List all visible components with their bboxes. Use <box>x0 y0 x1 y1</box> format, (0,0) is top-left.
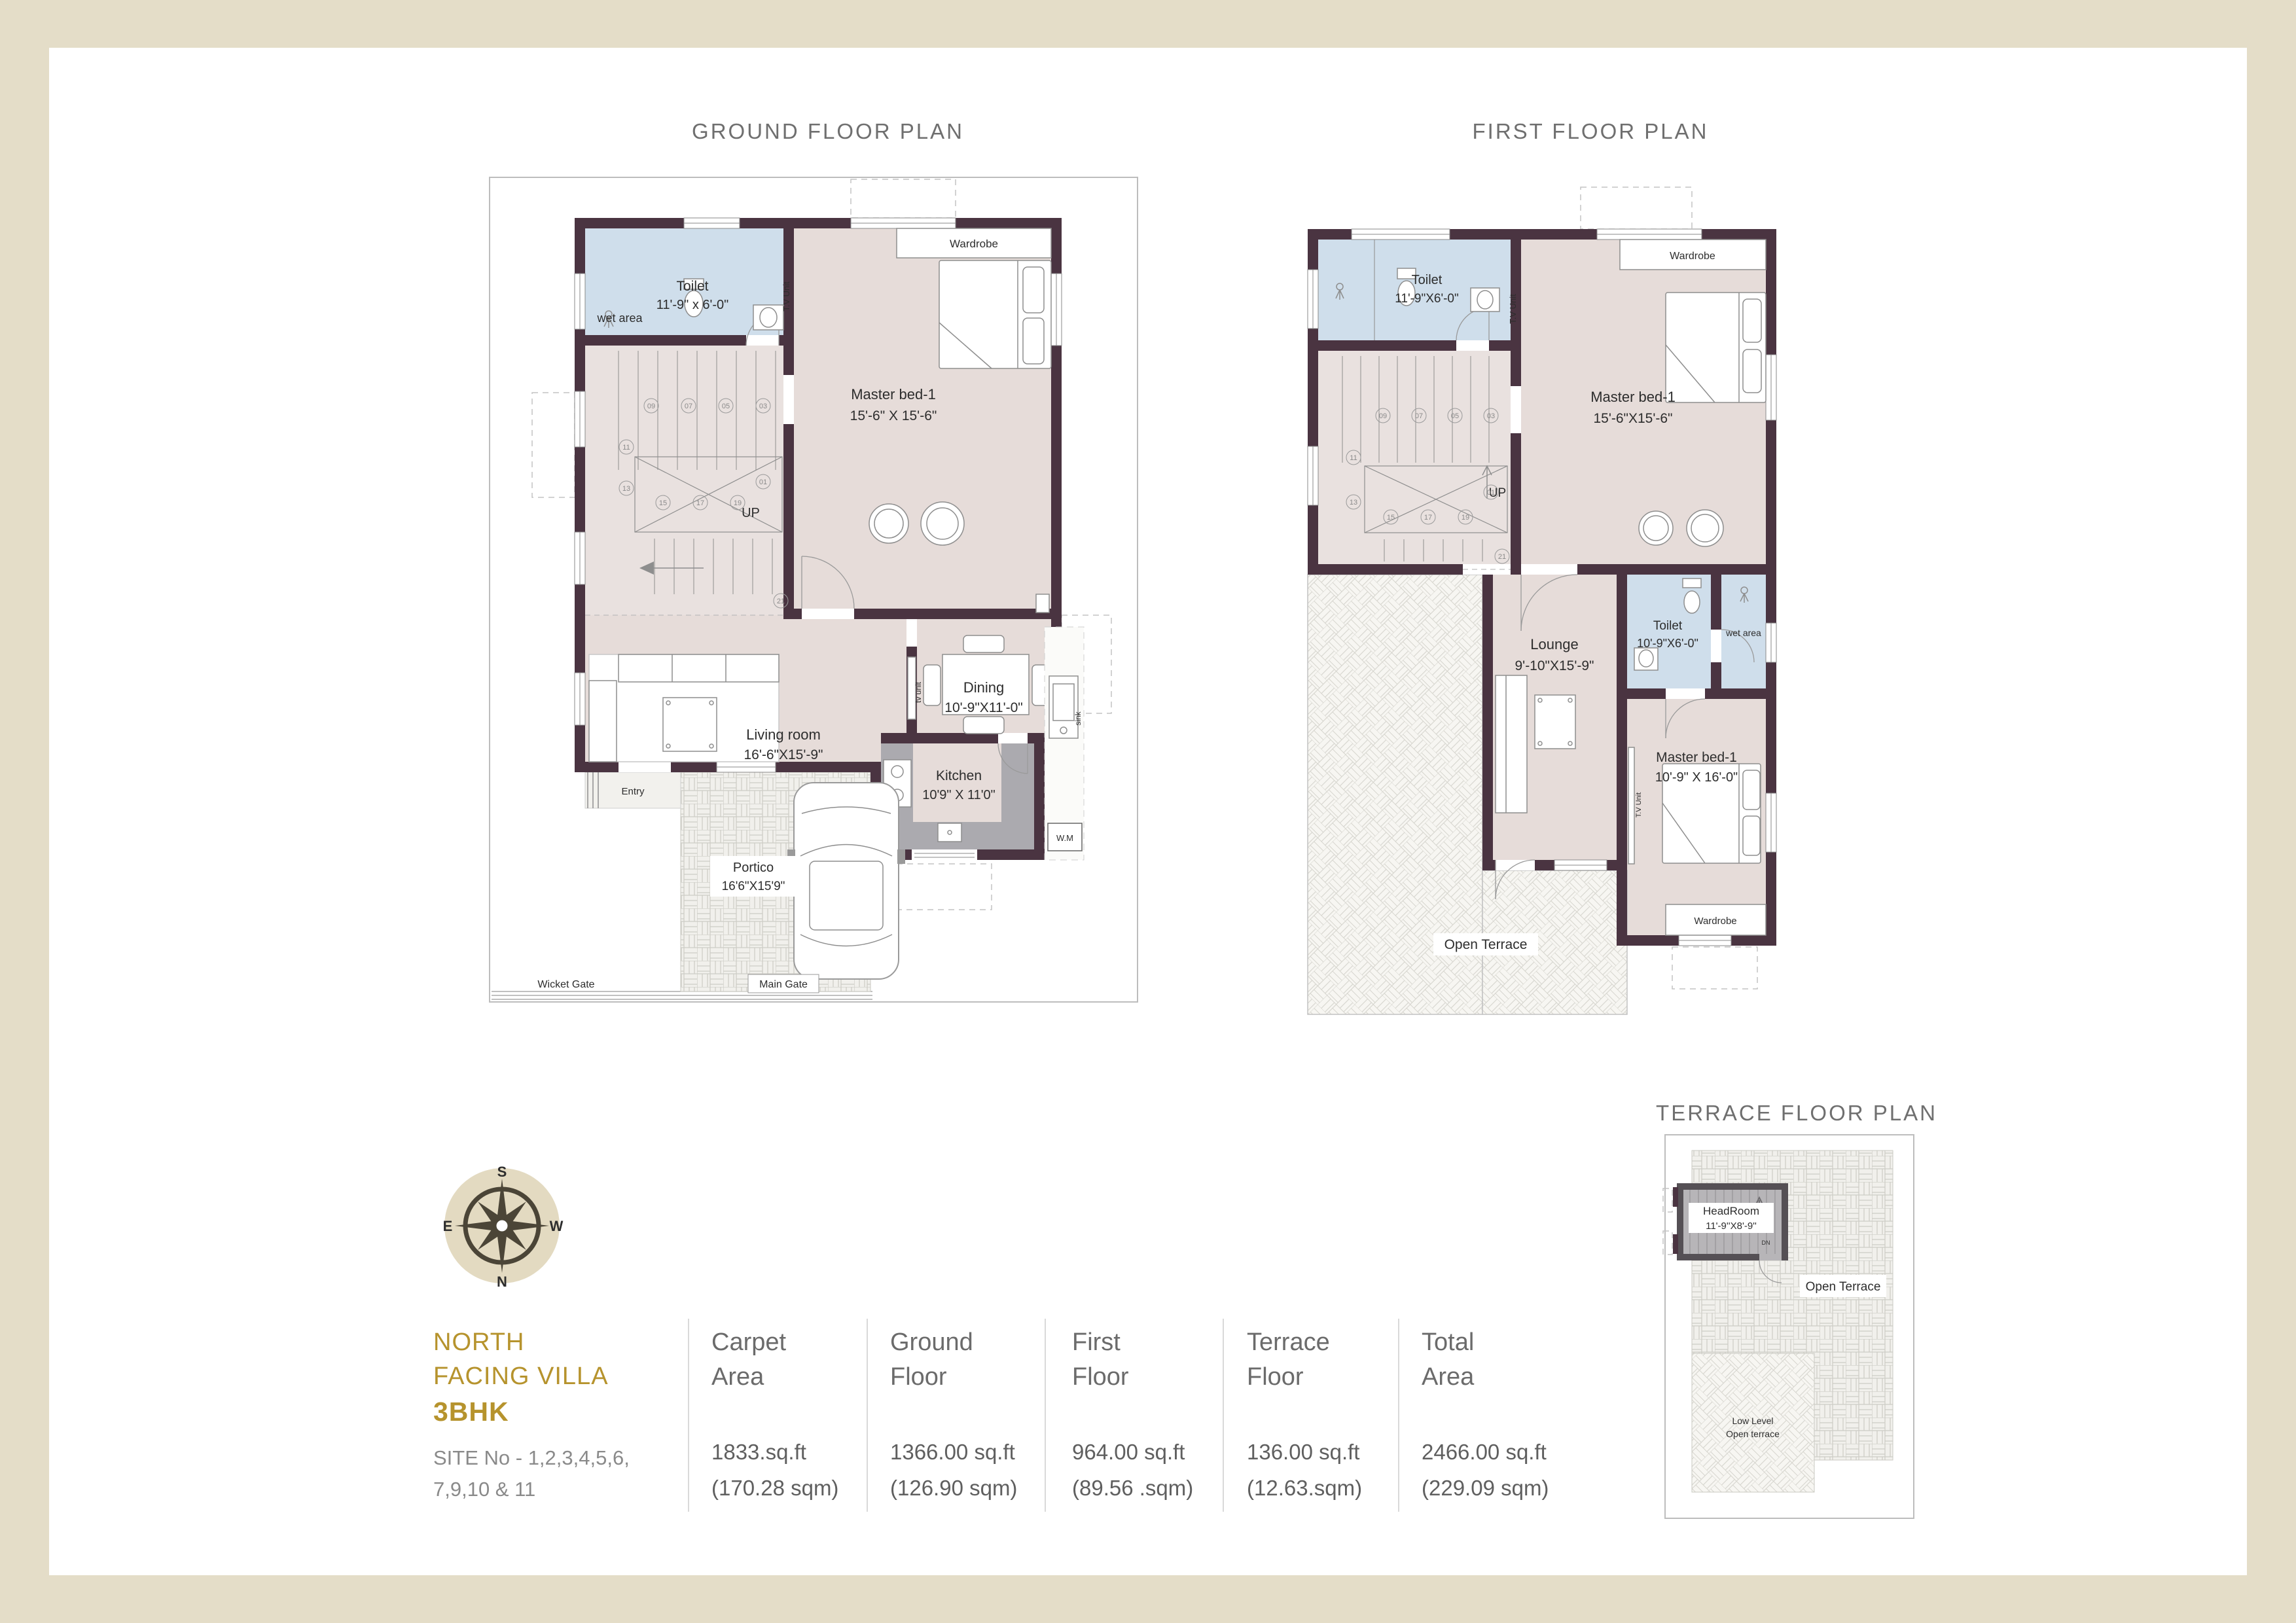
compass-east-label: E <box>443 1218 453 1234</box>
ff-tv-unit-box <box>1628 747 1634 864</box>
site-number-line1: SITE No - 1,2,3,4,5,6, <box>433 1446 630 1470</box>
ff-master2-label: Master bed-1 <box>1656 750 1737 765</box>
ff-toilet2-label: Toilet <box>1653 619 1683 633</box>
gf-dining-label: Dining <box>963 679 1004 696</box>
tf-headroom-label: HeadRoom <box>1703 1205 1759 1217</box>
compass-north-label: N <box>497 1274 507 1290</box>
ff-open-terrace-label: Open Terrace <box>1444 937 1528 952</box>
tf-low-level-label1: Low Level <box>1732 1416 1773 1426</box>
stair-step-number: 07 <box>685 402 692 410</box>
first-floor-plan: Toilet 11'-9"X6'-0" Wardrobe Master bed-… <box>1299 171 1803 1022</box>
gf-portico-dims: 16'6"X15'9" <box>722 880 785 893</box>
stair-step-number: 05 <box>1451 412 1459 420</box>
stat-metric: (12.63.sqm) <box>1247 1476 1362 1501</box>
stair-step-number: 09 <box>647 402 655 410</box>
stair-step-number: 21 <box>777 597 785 605</box>
ground-floor-plan: wet area Toilet 11'-9" x 6'-0" Wardrobe … <box>488 175 1142 1013</box>
ff-toilet1-label: Toilet <box>1412 273 1443 287</box>
gf-sink-label: sink <box>1073 711 1083 725</box>
stair-step-number: 03 <box>759 402 767 410</box>
ff-tv-unit2-label: T.V Unit <box>1635 793 1643 818</box>
gf-up-label: UP <box>742 506 760 520</box>
stair-step-number: 01 <box>1487 489 1495 497</box>
stat-carpet-area: CarpetArea 1833.sq.ft (170.28 sqm) <box>711 1325 875 1395</box>
villa-title-line3: 3BHK <box>433 1397 509 1427</box>
ff-wardrobe2-label: Wardrobe <box>1694 916 1736 927</box>
stat-metric: (229.09 sqm) <box>1422 1476 1549 1501</box>
villa-title-line2: FACING VILLA <box>433 1363 609 1391</box>
gf-kitchen-dims: 10'9" X 11'0" <box>922 788 996 802</box>
terrace-floor-plan: HeadRoom 11'-9''X8'-9'' DN Open Terrace … <box>1662 1130 1918 1522</box>
stair-step-number: 03 <box>1487 412 1495 420</box>
gf-kitchen-label: Kitchen <box>936 768 982 783</box>
terrace-floor-plan-title: TERRACE FLOOR PLAN <box>1626 1101 1967 1126</box>
stair-step-number: 05 <box>722 402 730 410</box>
gf-master-bed-dims: 15'-6" X 15'-6" <box>850 408 937 423</box>
stat-ground-floor: GroundFloor 1366.00 sq.ft (126.90 sqm) <box>890 1325 1054 1395</box>
villa-title-line1: NORTH <box>433 1329 524 1357</box>
stat-total-area: TotalArea 2466.00 sq.ft (229.09 sqm) <box>1422 1325 1585 1395</box>
ff-toilet1-dims: 11'-9"X6'-0" <box>1395 292 1459 306</box>
gf-tv-unit-small-label: tv unit <box>914 681 923 703</box>
tf-open-terrace-label: Open Terrace <box>1806 1280 1881 1294</box>
stair-step-number: 11 <box>1350 454 1357 462</box>
ground-floor-plan-title: GROUND FLOOR PLAN <box>658 119 998 144</box>
ff-master1-dims: 15'-6"X15'-6" <box>1594 411 1673 426</box>
stat-terrace-floor: TerraceFloor 136.00 sq.ft (12.63.sqm) <box>1247 1325 1410 1395</box>
gf-bed <box>939 260 1051 368</box>
stair-step-number: 01 <box>759 478 767 486</box>
stat-label: Terrace <box>1247 1329 1330 1356</box>
gf-living-dims: 16'-6"X15'-9" <box>744 747 823 762</box>
ff-lounge-label: Lounge <box>1530 636 1578 652</box>
tf-headroom-dims: 11'-9''X8'-9'' <box>1706 1221 1757 1232</box>
stat-metric: (89.56 .sqm) <box>1072 1476 1193 1501</box>
gf-portico-label: Portico <box>733 861 774 875</box>
ff-master1-bed <box>1666 293 1766 402</box>
stat-label: Floor <box>1072 1363 1129 1391</box>
stat-metric: (126.90 sqm) <box>890 1476 1017 1501</box>
compass-south-label: S <box>497 1164 507 1180</box>
stair-step-number: 17 <box>696 499 704 507</box>
compass-rose: S N E W <box>433 1157 571 1294</box>
stair-step-number: 15 <box>659 499 667 507</box>
stat-label: Floor <box>890 1363 947 1391</box>
stat-label: Floor <box>1247 1363 1304 1391</box>
stair-step-number: 19 <box>734 499 742 507</box>
stair-step-number: 19 <box>1462 514 1469 522</box>
ff-wet-area-label: wet area <box>1725 628 1761 638</box>
gf-wardrobe-label: Wardrobe <box>950 238 998 250</box>
first-floor-plan-title: FIRST FLOOR PLAN <box>1420 119 1761 144</box>
ff-master1-label: Master bed-1 <box>1590 389 1676 405</box>
gf-utility-strip <box>1045 627 1084 860</box>
stat-value: 1833.sq.ft <box>711 1440 806 1465</box>
gf-entry-label: Entry <box>621 786 645 797</box>
gf-car <box>787 783 905 979</box>
ff-toilet2-dims: 10'-9"X6'-0" <box>1637 637 1698 650</box>
gf-tv-unit-label: T.V Unit <box>781 281 791 312</box>
gf-main-gate-label: Main Gate <box>759 979 808 990</box>
compass-west-label: W <box>550 1218 564 1234</box>
stat-label: First <box>1072 1329 1121 1356</box>
ff-wardrobe1-label: Wardrobe <box>1670 251 1715 262</box>
stat-label: Area <box>1422 1363 1474 1391</box>
stat-label: Carpet <box>711 1329 786 1356</box>
gf-master-bed-label: Master bed-1 <box>851 386 936 402</box>
stair-step-number: 13 <box>1350 499 1357 507</box>
stat-value: 964.00 sq.ft <box>1072 1440 1185 1465</box>
stats-divider <box>688 1319 689 1512</box>
gf-toilet-label: Toilet <box>676 279 708 294</box>
ff-lounge-dims: 9'-10"X15'-9" <box>1515 658 1594 673</box>
gf-wm-label: W.M <box>1056 833 1073 843</box>
gf-sofa <box>589 654 779 762</box>
site-number-line2: 7,9,10 & 11 <box>433 1478 535 1501</box>
stat-value: 1366.00 sq.ft <box>890 1440 1015 1465</box>
stat-metric: (170.28 sqm) <box>711 1476 838 1501</box>
gf-wash-basin <box>1036 594 1049 613</box>
ff-master2-dims: 10'-9" X 16'-0" <box>1655 770 1738 785</box>
stat-value: 2466.00 sq.ft <box>1422 1440 1547 1465</box>
stair-step-number: 13 <box>622 485 630 493</box>
tf-dn-label: DN <box>1762 1240 1770 1246</box>
gf-living-label: Living room <box>746 726 821 743</box>
stair-step-number: 21 <box>1498 553 1506 561</box>
stat-label: Total <box>1422 1329 1474 1356</box>
stair-step-number: 11 <box>622 444 630 452</box>
tf-low-level-label2: Open terrace <box>1726 1429 1780 1439</box>
gf-toilet-dims: 11'-9" x 6'-0" <box>656 298 728 312</box>
ff-tv-unit1-label: T.V Unit <box>1508 294 1518 324</box>
stat-label: Area <box>711 1363 764 1391</box>
stair-step-number: 15 <box>1387 514 1395 522</box>
gf-wet-area-label: wet area <box>596 312 643 325</box>
gf-dining-dims: 10'-9"X11'-0" <box>944 700 1022 715</box>
stair-step-number: 09 <box>1379 412 1387 420</box>
stair-step-number: 07 <box>1415 412 1423 420</box>
stat-first-floor: FirstFloor 964.00 sq.ft (89.56 .sqm) <box>1072 1325 1236 1395</box>
stair-step-number: 17 <box>1424 514 1432 522</box>
stat-label: Ground <box>890 1329 973 1356</box>
stat-value: 136.00 sq.ft <box>1247 1440 1359 1465</box>
gf-wicket-gate-label: Wicket Gate <box>537 979 594 990</box>
